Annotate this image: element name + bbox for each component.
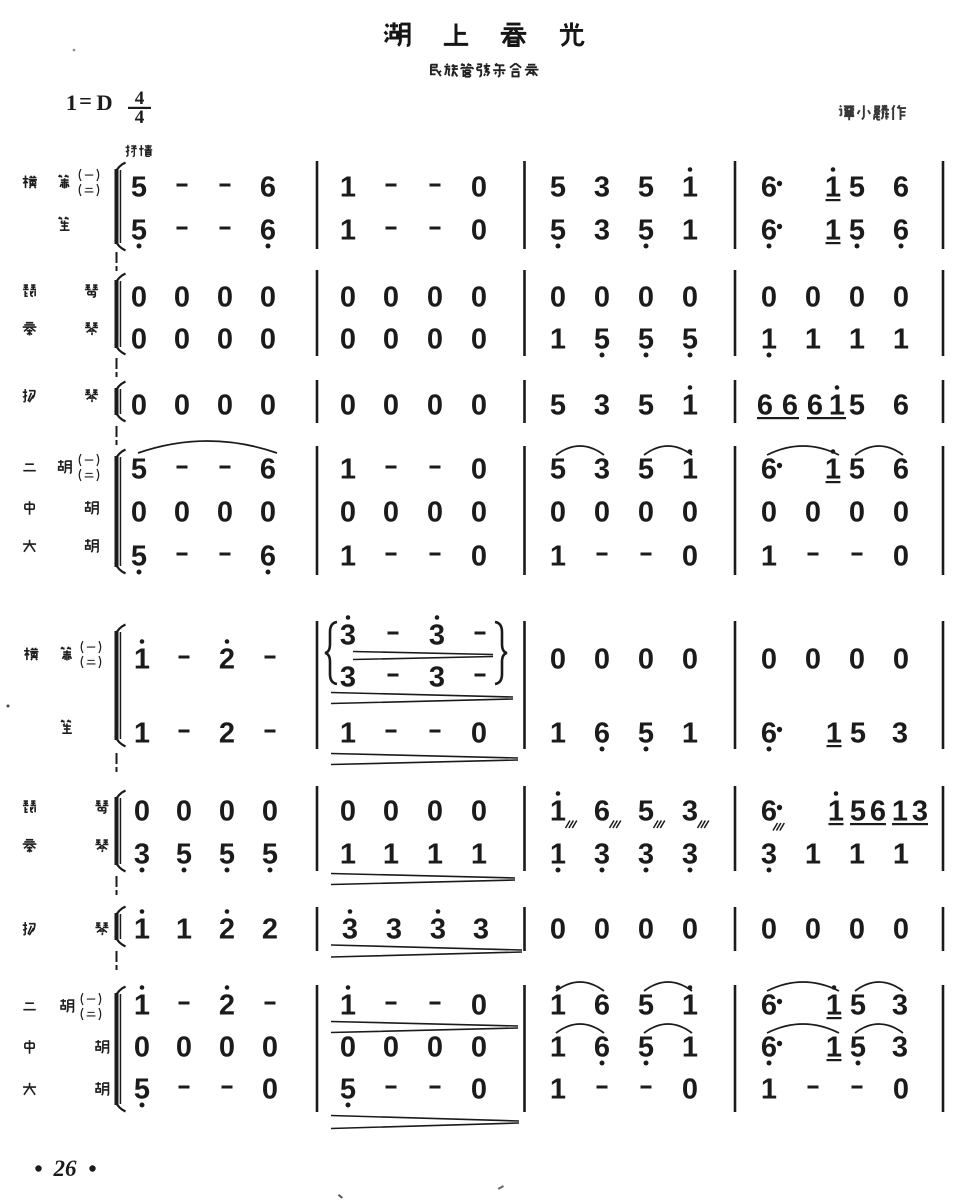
svg-text:5: 5	[850, 718, 866, 750]
svg-text:0: 0	[849, 644, 865, 676]
svg-text:6: 6	[260, 454, 276, 486]
svg-text:1: 1	[340, 172, 356, 204]
svg-text:0: 0	[340, 497, 356, 529]
svg-text:3: 3	[386, 914, 402, 946]
svg-text:6: 6	[893, 390, 909, 422]
svg-text:0: 0	[471, 390, 487, 422]
svg-text:3: 3	[429, 620, 445, 652]
svg-text:0: 0	[340, 390, 356, 422]
svg-text:6: 6	[870, 796, 886, 828]
svg-text:0: 0	[131, 324, 147, 356]
svg-text:5: 5	[131, 541, 147, 573]
svg-text:1: 1	[825, 215, 841, 247]
svg-text:0: 0	[427, 282, 443, 314]
svg-text:3: 3	[761, 839, 777, 871]
svg-text:0: 0	[550, 497, 566, 529]
svg-text:6: 6	[594, 990, 610, 1022]
svg-text:0: 0	[682, 541, 698, 573]
svg-text:0: 0	[638, 282, 654, 314]
svg-text:=: =	[79, 88, 92, 113]
svg-text:0: 0	[131, 390, 147, 422]
svg-text:1: 1	[761, 541, 777, 573]
svg-text:1: 1	[805, 324, 821, 356]
svg-text:3: 3	[340, 662, 356, 694]
svg-text:6: 6	[893, 215, 909, 247]
svg-text:1: 1	[849, 324, 865, 356]
svg-text:1: 1	[682, 454, 698, 486]
svg-text:3: 3	[682, 839, 698, 871]
svg-text:1: 1	[682, 172, 698, 204]
svg-text:0: 0	[427, 1032, 443, 1064]
svg-text:0: 0	[471, 990, 487, 1022]
svg-text:0: 0	[849, 914, 865, 946]
svg-text:0: 0	[383, 796, 399, 828]
svg-text:1: 1	[682, 718, 698, 750]
svg-text:1: 1	[550, 718, 566, 750]
svg-text:0: 0	[594, 914, 610, 946]
svg-text:1: 1	[550, 839, 566, 871]
svg-text:3: 3	[430, 914, 446, 946]
svg-text:5: 5	[682, 324, 698, 356]
svg-text:0: 0	[340, 282, 356, 314]
svg-text:6: 6	[782, 390, 798, 422]
svg-text:0: 0	[131, 282, 147, 314]
svg-text:0: 0	[131, 497, 147, 529]
svg-text:5: 5	[550, 454, 566, 486]
svg-text:5: 5	[131, 215, 147, 247]
svg-text:0: 0	[471, 172, 487, 204]
svg-text:0: 0	[383, 497, 399, 529]
svg-text:3: 3	[594, 172, 610, 204]
svg-text:0: 0	[471, 324, 487, 356]
svg-text:5: 5	[638, 990, 654, 1022]
svg-text:1: 1	[176, 914, 192, 946]
svg-text:5: 5	[849, 454, 865, 486]
svg-text:1: 1	[893, 839, 909, 871]
svg-text:5: 5	[850, 990, 866, 1022]
svg-text:0: 0	[638, 644, 654, 676]
svg-text:1: 1	[849, 839, 865, 871]
svg-text:5: 5	[340, 1074, 356, 1106]
svg-text:1: 1	[471, 839, 487, 871]
svg-text:1: 1	[134, 914, 150, 946]
svg-text:0: 0	[219, 1032, 235, 1064]
svg-text:5: 5	[550, 390, 566, 422]
svg-text:3: 3	[892, 1032, 908, 1064]
svg-text:0: 0	[893, 282, 909, 314]
svg-text:6: 6	[893, 172, 909, 204]
svg-text:5: 5	[550, 215, 566, 247]
svg-text:3: 3	[594, 839, 610, 871]
svg-text:5: 5	[849, 390, 865, 422]
svg-text:1: 1	[825, 172, 841, 204]
svg-text:6: 6	[761, 1032, 777, 1064]
svg-text:6: 6	[260, 172, 276, 204]
svg-text:0: 0	[893, 541, 909, 573]
svg-text:3: 3	[594, 390, 610, 422]
svg-text:0: 0	[217, 324, 233, 356]
svg-text:0: 0	[893, 914, 909, 946]
svg-text:0: 0	[550, 644, 566, 676]
svg-text:3: 3	[892, 990, 908, 1022]
svg-text:0: 0	[594, 644, 610, 676]
svg-text:0: 0	[682, 497, 698, 529]
svg-text:3: 3	[594, 215, 610, 247]
svg-text:0: 0	[893, 1074, 909, 1106]
svg-text:1: 1	[550, 1074, 566, 1106]
svg-text:0: 0	[471, 1032, 487, 1064]
svg-text:1: 1	[550, 1032, 566, 1064]
svg-text:1: 1	[829, 390, 845, 422]
svg-text:6: 6	[761, 796, 777, 828]
svg-text:0: 0	[427, 796, 443, 828]
svg-text:0: 0	[761, 497, 777, 529]
svg-text:0: 0	[849, 497, 865, 529]
svg-text:5: 5	[134, 1074, 150, 1106]
svg-text:5: 5	[262, 839, 278, 871]
svg-text:1: 1	[550, 796, 566, 828]
svg-text:0: 0	[260, 390, 276, 422]
svg-text:0: 0	[217, 497, 233, 529]
svg-text:0: 0	[262, 1074, 278, 1106]
svg-text:0: 0	[340, 1032, 356, 1064]
svg-text:5: 5	[850, 796, 866, 828]
svg-text:0: 0	[594, 497, 610, 529]
svg-text:5: 5	[638, 215, 654, 247]
svg-text:5: 5	[131, 454, 147, 486]
svg-text:6: 6	[761, 172, 777, 204]
svg-text:5: 5	[638, 1032, 654, 1064]
svg-text:2: 2	[219, 990, 235, 1022]
svg-text:0: 0	[174, 282, 190, 314]
svg-text:0: 0	[427, 324, 443, 356]
svg-text:5: 5	[638, 390, 654, 422]
svg-text:1: 1	[550, 324, 566, 356]
svg-text:0: 0	[471, 215, 487, 247]
svg-text:0: 0	[805, 282, 821, 314]
svg-text:5: 5	[219, 839, 235, 871]
svg-text:0: 0	[176, 796, 192, 828]
svg-text:5: 5	[849, 215, 865, 247]
svg-text:1: 1	[340, 718, 356, 750]
svg-text:3: 3	[429, 662, 445, 694]
svg-text:6: 6	[757, 390, 773, 422]
svg-text:1: 1	[134, 718, 150, 750]
svg-text:0: 0	[893, 497, 909, 529]
svg-text:3: 3	[473, 914, 489, 946]
svg-text:0: 0	[893, 644, 909, 676]
svg-text:1: 1	[682, 990, 698, 1022]
svg-text:1: 1	[826, 990, 842, 1022]
svg-text:0: 0	[471, 1074, 487, 1106]
svg-text:2: 2	[262, 914, 278, 946]
svg-text:5: 5	[849, 172, 865, 204]
svg-text:0: 0	[550, 914, 566, 946]
svg-text:6: 6	[260, 541, 276, 573]
svg-text:1: 1	[761, 1074, 777, 1106]
svg-text:2: 2	[219, 718, 235, 750]
svg-text:0: 0	[761, 282, 777, 314]
svg-text:6: 6	[260, 215, 276, 247]
svg-text:1: 1	[340, 541, 356, 573]
svg-text:0: 0	[594, 282, 610, 314]
svg-text:3: 3	[638, 839, 654, 871]
svg-text:1: 1	[892, 796, 908, 828]
svg-text:1: 1	[340, 839, 356, 871]
svg-text:0: 0	[174, 390, 190, 422]
svg-text:0: 0	[260, 324, 276, 356]
svg-text:0: 0	[805, 644, 821, 676]
svg-text:0: 0	[471, 718, 487, 750]
svg-text:0: 0	[340, 324, 356, 356]
svg-text:1: 1	[550, 541, 566, 573]
svg-text:0: 0	[262, 796, 278, 828]
svg-text:3: 3	[892, 718, 908, 750]
svg-text:0: 0	[262, 1032, 278, 1064]
svg-text:1: 1	[427, 839, 443, 871]
svg-text:0: 0	[805, 914, 821, 946]
svg-text:0: 0	[219, 796, 235, 828]
svg-text:0: 0	[682, 1074, 698, 1106]
svg-text:6: 6	[761, 215, 777, 247]
svg-text:1: 1	[826, 718, 842, 750]
svg-text:1: 1	[66, 90, 77, 115]
svg-text:0: 0	[260, 497, 276, 529]
svg-text:0: 0	[471, 497, 487, 529]
svg-text:2: 2	[219, 644, 235, 676]
svg-text:0: 0	[174, 324, 190, 356]
svg-text:1: 1	[134, 644, 150, 676]
svg-text:6: 6	[807, 390, 823, 422]
svg-text:6: 6	[761, 990, 777, 1022]
svg-text:6: 6	[893, 454, 909, 486]
svg-text:3: 3	[594, 454, 610, 486]
svg-text:1: 1	[682, 390, 698, 422]
svg-text:5: 5	[594, 324, 610, 356]
svg-text:3: 3	[912, 796, 928, 828]
svg-text:0: 0	[638, 914, 654, 946]
svg-text:6: 6	[594, 796, 610, 828]
svg-text:4: 4	[135, 107, 145, 128]
svg-text:0: 0	[176, 1032, 192, 1064]
svg-text:0: 0	[550, 282, 566, 314]
svg-text:0: 0	[805, 497, 821, 529]
svg-text:6: 6	[761, 718, 777, 750]
svg-text:2: 2	[219, 914, 235, 946]
svg-text:5: 5	[638, 454, 654, 486]
svg-text:5: 5	[176, 839, 192, 871]
svg-text:0: 0	[427, 390, 443, 422]
svg-text:5: 5	[131, 172, 147, 204]
svg-text:0: 0	[761, 914, 777, 946]
svg-text:0: 0	[638, 497, 654, 529]
svg-text:6: 6	[594, 718, 610, 750]
svg-text:1: 1	[550, 990, 566, 1022]
svg-text:0: 0	[682, 914, 698, 946]
svg-text:3: 3	[342, 914, 358, 946]
svg-text:26: 26	[53, 1156, 78, 1181]
svg-text:5: 5	[638, 172, 654, 204]
svg-text:1: 1	[826, 1032, 842, 1064]
svg-text:5: 5	[638, 796, 654, 828]
svg-text:1: 1	[682, 215, 698, 247]
svg-text:0: 0	[134, 1032, 150, 1064]
svg-text:0: 0	[340, 796, 356, 828]
svg-text:0: 0	[217, 282, 233, 314]
svg-text:1: 1	[761, 324, 777, 356]
svg-text:1: 1	[340, 990, 356, 1022]
svg-text:1: 1	[340, 215, 356, 247]
svg-text:5: 5	[638, 718, 654, 750]
svg-text:0: 0	[682, 282, 698, 314]
svg-text:0: 0	[260, 282, 276, 314]
svg-text:0: 0	[383, 1032, 399, 1064]
svg-text:1: 1	[828, 796, 844, 828]
svg-text:3: 3	[134, 839, 150, 871]
svg-text:1: 1	[134, 990, 150, 1022]
svg-text:3: 3	[340, 620, 356, 652]
svg-text:1: 1	[682, 1032, 698, 1064]
svg-text:0: 0	[217, 390, 233, 422]
svg-text:0: 0	[174, 497, 190, 529]
svg-text:5: 5	[850, 1032, 866, 1064]
svg-text:0: 0	[134, 796, 150, 828]
svg-text:0: 0	[849, 282, 865, 314]
svg-text:0: 0	[471, 541, 487, 573]
svg-text:1: 1	[340, 454, 356, 486]
svg-text:0: 0	[682, 644, 698, 676]
svg-text:0: 0	[471, 454, 487, 486]
svg-text:0: 0	[383, 324, 399, 356]
svg-text:1: 1	[825, 454, 841, 486]
svg-text:6: 6	[761, 454, 777, 486]
svg-text:3: 3	[682, 796, 698, 828]
svg-text:6: 6	[594, 1032, 610, 1064]
svg-text:0: 0	[471, 282, 487, 314]
svg-text:5: 5	[638, 324, 654, 356]
svg-text:0: 0	[761, 644, 777, 676]
svg-text:0: 0	[383, 282, 399, 314]
svg-text:1: 1	[805, 839, 821, 871]
svg-text:4: 4	[135, 88, 145, 109]
svg-text:D: D	[96, 90, 112, 115]
svg-text:0: 0	[383, 390, 399, 422]
svg-text:1: 1	[893, 324, 909, 356]
svg-text:5: 5	[550, 172, 566, 204]
svg-text:0: 0	[427, 497, 443, 529]
svg-text:1: 1	[383, 839, 399, 871]
svg-text:0: 0	[471, 796, 487, 828]
